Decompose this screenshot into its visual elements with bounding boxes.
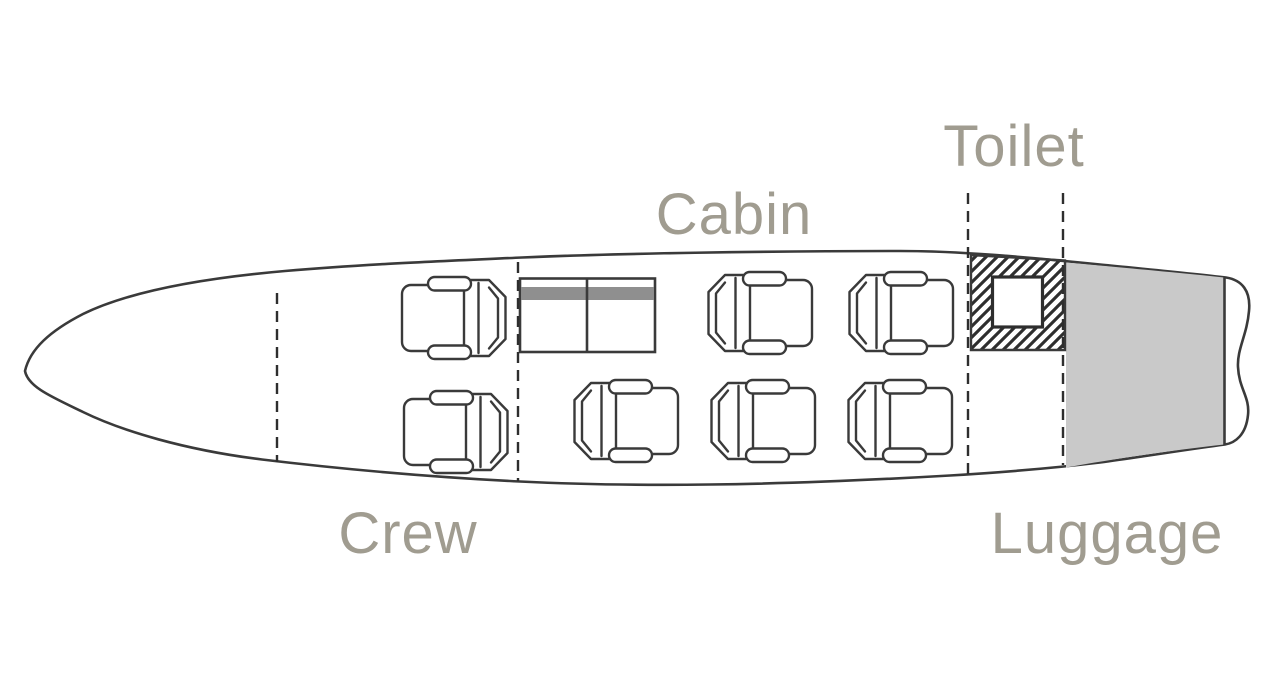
crew-seat-1 <box>402 277 506 359</box>
cabin-seat-4 <box>712 380 816 462</box>
floor-plan-drawing <box>0 0 1280 674</box>
aircraft-floor-plan: Cabin Toilet Crew Luggage <box>0 0 1280 674</box>
cabin-seat-5 <box>849 380 953 462</box>
cabin-seat-2 <box>850 272 954 354</box>
crew-label: Crew <box>338 505 477 563</box>
cabin-table <box>520 279 655 353</box>
cabin-label: Cabin <box>656 186 813 244</box>
toilet-seat <box>993 277 1043 327</box>
toilet-label: Toilet <box>943 118 1084 176</box>
crew-seat-2 <box>404 391 508 473</box>
cabin-seat-3 <box>575 380 679 462</box>
luggage-label: Luggage <box>991 505 1224 563</box>
cabin-seat-1 <box>709 272 813 354</box>
luggage-area <box>1066 263 1224 468</box>
